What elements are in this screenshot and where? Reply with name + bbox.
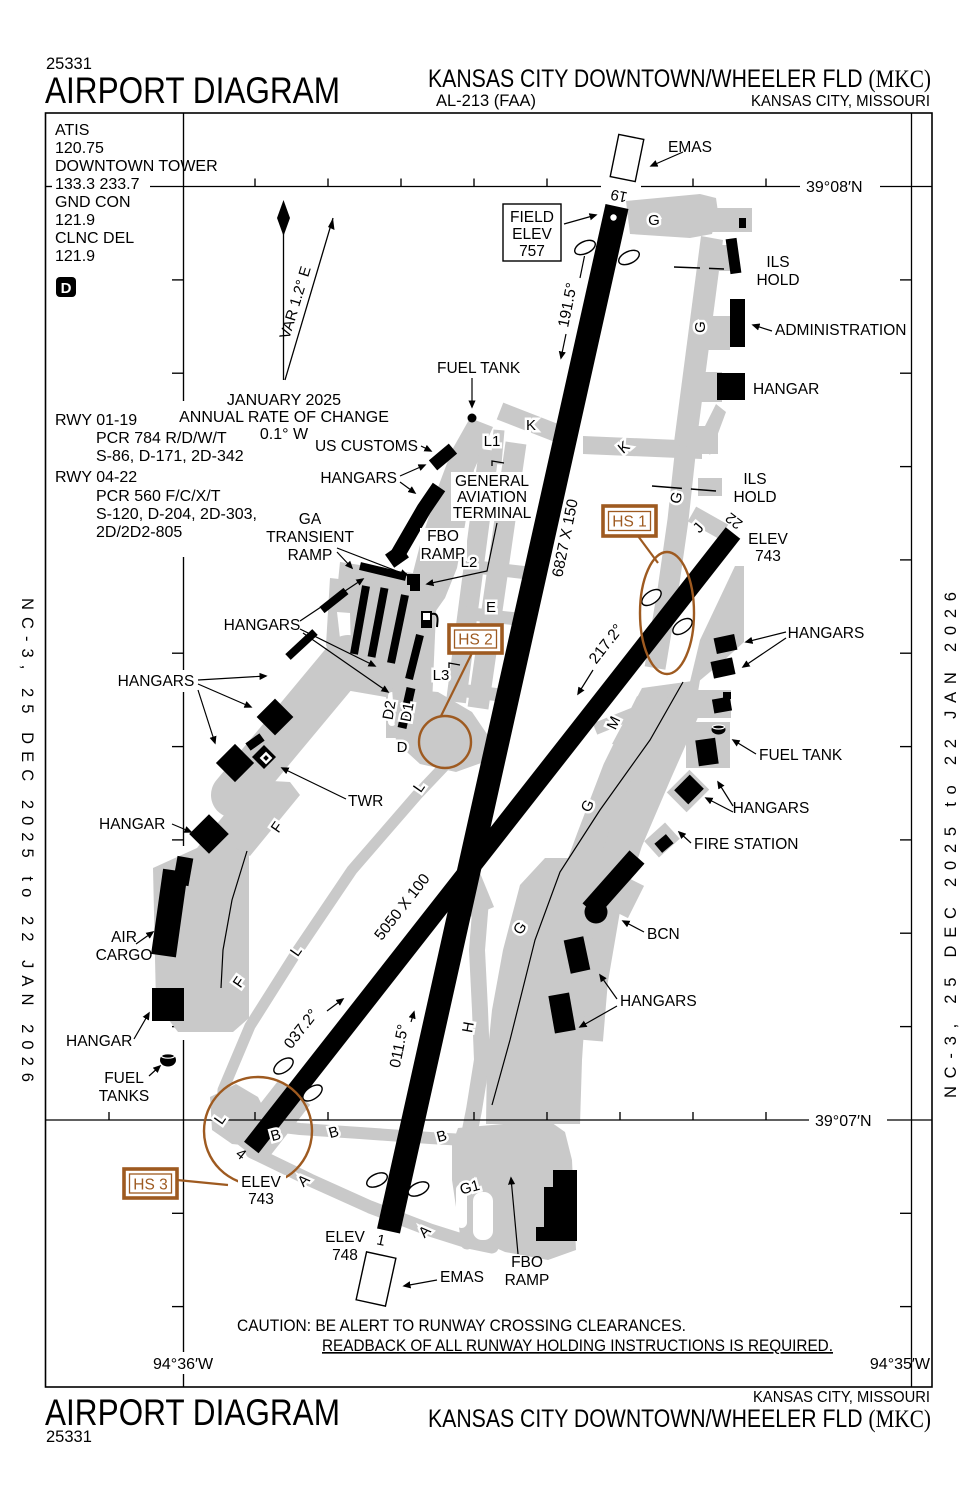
svg-text:TRANSIENT: TRANSIENT: [266, 529, 354, 546]
svg-text:DOWNTOWN TOWER: DOWNTOWN TOWER: [55, 158, 218, 175]
svg-text:D2: D2: [380, 699, 400, 721]
svg-text:CAUTION: BE ALERT TO RUNWAY CR: CAUTION: BE ALERT TO RUNWAY CROSSING CLE…: [237, 1317, 686, 1335]
svg-text:AIRPORT DIAGRAM: AIRPORT DIAGRAM: [45, 1392, 340, 1433]
svg-text:L2: L2: [461, 554, 478, 571]
svg-text:133.3 233.7: 133.3 233.7: [55, 176, 140, 193]
svg-text:JANUARY 2025: JANUARY 2025: [227, 392, 341, 409]
svg-text:TERMINAL: TERMINAL: [453, 505, 532, 522]
svg-text:S-120, D-204, 2D-303,: S-120, D-204, 2D-303,: [96, 506, 257, 523]
svg-text:FIRE STATION: FIRE STATION: [694, 836, 798, 853]
svg-text:HANGARS: HANGARS: [118, 673, 195, 690]
svg-text:25331: 25331: [46, 1428, 92, 1446]
svg-text:HANGAR: HANGAR: [66, 1033, 132, 1050]
svg-text:121.9: 121.9: [55, 248, 95, 265]
svg-text:94°36′W: 94°36′W: [153, 1356, 214, 1373]
svg-text:RAMP: RAMP: [288, 547, 333, 564]
svg-text:TANKS: TANKS: [99, 1088, 150, 1105]
svg-text:HS 2: HS 2: [458, 632, 492, 649]
svg-text:121.9: 121.9: [55, 212, 95, 229]
svg-text:ATIS: ATIS: [55, 122, 89, 139]
svg-text:PCR 560 F/C/X/T: PCR 560 F/C/X/T: [96, 488, 221, 505]
svg-text:FBO: FBO: [427, 528, 459, 545]
svg-text:HS 3: HS 3: [133, 1177, 167, 1194]
svg-text:743: 743: [755, 548, 781, 565]
svg-text:HANGARS: HANGARS: [733, 800, 810, 817]
svg-text:39°07′N: 39°07′N: [815, 1113, 872, 1130]
svg-text:ELEV: ELEV: [325, 1229, 365, 1246]
svg-text:GND CON: GND CON: [55, 194, 131, 211]
svg-text:ELEV: ELEV: [512, 226, 552, 243]
svg-text:KANSAS CITY, MISSOURI: KANSAS CITY, MISSOURI: [753, 1389, 930, 1406]
svg-text:HS 1: HS 1: [612, 514, 646, 531]
svg-text:2D/2D2-805: 2D/2D2-805: [96, 524, 182, 541]
svg-text:ILS: ILS: [766, 254, 789, 271]
svg-text:L3: L3: [433, 667, 450, 684]
svg-text:HANGAR: HANGAR: [753, 381, 819, 398]
svg-text:FUEL TANK: FUEL TANK: [759, 747, 843, 764]
svg-text:ELEV: ELEV: [748, 531, 788, 548]
svg-text:KANSAS CITY DOWNTOWN/WHEELER F: KANSAS CITY DOWNTOWN/WHEELER FLD (MKC): [428, 1405, 931, 1433]
svg-text:EMAS: EMAS: [668, 139, 712, 156]
svg-text:KANSAS CITY, MISSOURI: KANSAS CITY, MISSOURI: [751, 93, 930, 110]
svg-text:US CUSTOMS: US CUSTOMS: [315, 438, 418, 455]
svg-text:HANGARS: HANGARS: [788, 625, 865, 642]
svg-text:TWR: TWR: [348, 793, 383, 810]
svg-text:G: G: [648, 212, 660, 229]
svg-text:D: D: [397, 739, 408, 756]
svg-text:ADMINISTRATION: ADMINISTRATION: [775, 322, 906, 339]
svg-text:HOLD: HOLD: [756, 272, 799, 289]
svg-text:RWY 01-19: RWY 01-19: [55, 412, 137, 429]
svg-text:39°08′N: 39°08′N: [806, 179, 863, 196]
svg-text:748: 748: [332, 1247, 358, 1264]
svg-text:RAMP: RAMP: [505, 1272, 550, 1289]
svg-text:FUEL TANK: FUEL TANK: [437, 360, 521, 377]
svg-text:FBO: FBO: [511, 1254, 543, 1271]
svg-text:94°35′W: 94°35′W: [870, 1356, 931, 1373]
svg-text:AL-213 (FAA): AL-213 (FAA): [436, 92, 536, 110]
svg-text:FIELD: FIELD: [510, 209, 554, 226]
svg-text:S-86, D-171, 2D-342: S-86, D-171, 2D-342: [96, 448, 244, 465]
svg-text:D: D: [61, 280, 72, 297]
svg-text:FUEL: FUEL: [104, 1070, 144, 1087]
svg-text:743: 743: [248, 1191, 274, 1208]
svg-text:D1: D1: [398, 701, 418, 723]
svg-text:E: E: [486, 599, 496, 616]
svg-text:HANGAR: HANGAR: [99, 816, 165, 833]
svg-text:KANSAS CITY DOWNTOWN/WHEELER F: KANSAS CITY DOWNTOWN/WHEELER FLD (MKC): [428, 65, 931, 93]
svg-text:19: 19: [609, 185, 629, 205]
svg-text:ANNUAL RATE OF CHANGE: ANNUAL RATE OF CHANGE: [179, 409, 389, 426]
svg-text:HANGARS: HANGARS: [620, 993, 697, 1010]
svg-text:HOLD: HOLD: [733, 489, 776, 506]
svg-text:AIR: AIR: [111, 929, 137, 946]
svg-text:CARGO: CARGO: [96, 947, 153, 964]
svg-text:K: K: [526, 417, 536, 434]
svg-text:HANGARS: HANGARS: [320, 470, 397, 487]
svg-text:HANGARS: HANGARS: [224, 617, 301, 634]
svg-text:RWY 04-22: RWY 04-22: [55, 469, 137, 486]
svg-text:READBACK OF ALL RUNWAY HOLDING: READBACK OF ALL RUNWAY HOLDING INSTRUCTI…: [322, 1337, 833, 1355]
svg-text:L1: L1: [484, 433, 501, 450]
svg-text:ELEV: ELEV: [241, 1174, 281, 1191]
svg-text:757: 757: [519, 243, 545, 260]
svg-text:CLNC DEL: CLNC DEL: [55, 230, 134, 247]
svg-text:0.1° W: 0.1° W: [260, 426, 309, 443]
svg-text:EMAS: EMAS: [440, 1269, 484, 1286]
svg-text:120.75: 120.75: [55, 140, 104, 157]
svg-text:GA: GA: [299, 511, 322, 528]
svg-text:BCN: BCN: [647, 926, 680, 943]
svg-text:AIRPORT DIAGRAM: AIRPORT DIAGRAM: [45, 70, 340, 111]
svg-text:GENERAL: GENERAL: [455, 473, 529, 490]
svg-text:RAMP: RAMP: [421, 546, 466, 563]
svg-text:ILS: ILS: [743, 471, 766, 488]
svg-text:G: G: [692, 321, 709, 333]
svg-text:AVIATION: AVIATION: [457, 489, 527, 506]
svg-text:PCR 784 R/D/W/T: PCR 784 R/D/W/T: [96, 430, 227, 447]
